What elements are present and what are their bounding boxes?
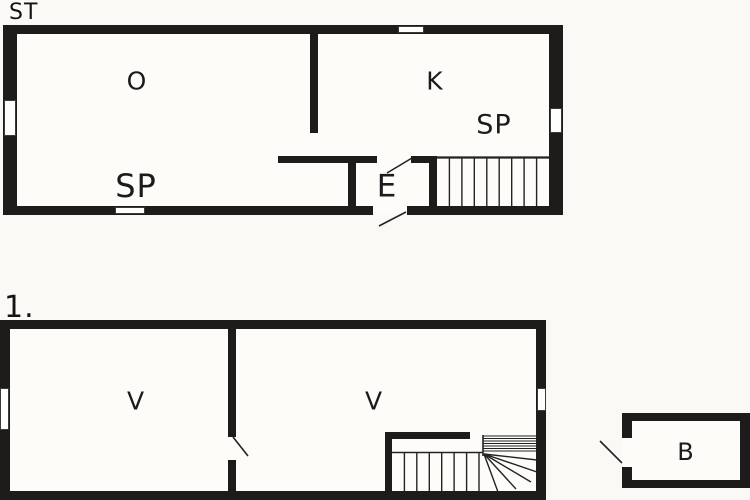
f1-staircase-winder <box>483 436 537 451</box>
floor-title-first: 1. <box>4 293 35 323</box>
f1-staircase-straight <box>392 435 483 491</box>
st-entry-outer-door-swing <box>379 212 406 226</box>
f1-door-swing <box>233 437 248 456</box>
b-door-swing <box>600 441 622 463</box>
room-label-sp-lower: SP <box>115 170 157 202</box>
room-label-sp-upper: SP <box>476 112 511 139</box>
floor-plan-canvas: ST O K SP SP E 1. V V B <box>0 0 750 500</box>
room-label-v-left: V <box>127 389 145 414</box>
floor-title-ground: ST <box>9 2 38 24</box>
st-staircase <box>437 158 549 207</box>
room-label-v-right: V <box>365 389 383 414</box>
room-label-o: O <box>127 69 148 94</box>
room-label-b: B <box>677 440 694 464</box>
plan-linework <box>0 0 750 500</box>
room-label-e: E <box>377 172 398 203</box>
f1-staircase-fan <box>484 454 537 492</box>
room-label-k: K <box>426 69 443 94</box>
